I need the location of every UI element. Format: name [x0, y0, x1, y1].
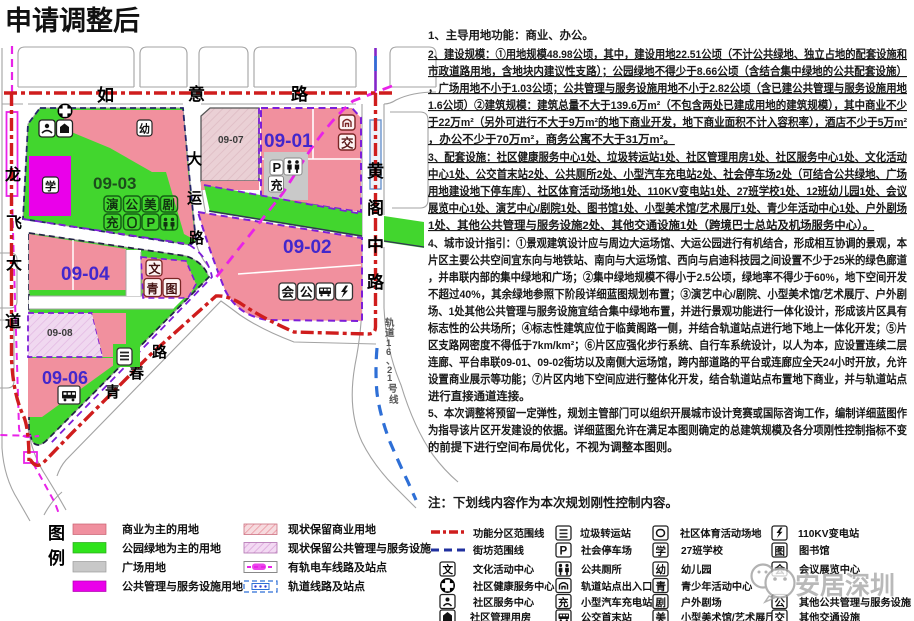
svg-text:展览中心1处、演艺中心/剧院1处、图书馆1处、小型美术馆/艺: 展览中心1处、演艺中心/剧院1处、图书馆1处、小型美术馆/艺术展厅1处、青少年活… — [427, 201, 907, 215]
svg-text:27班学校: 27班学校 — [681, 544, 724, 557]
svg-text:交: 交 — [775, 611, 786, 621]
svg-text:轨道站点出入口: 轨道站点出入口 — [581, 580, 652, 593]
svg-text:社区体育活动场地: 社区体育活动场地 — [679, 527, 762, 540]
svg-text:社会停车场: 社会停车场 — [580, 544, 632, 557]
svg-text:例: 例 — [48, 548, 65, 568]
svg-text:的前提下进行空间布局优化，不视为调整本图则。: 的前提下进行空间布局优化，不视为调整本图则。 — [428, 440, 679, 454]
svg-text:1处、其他公共管理与服务设施2处、其他交通设施1处（跨境巴士: 1处、其他公共管理与服务设施2处、其他交通设施1处（跨境巴士总站及机场服务中心）… — [428, 218, 874, 232]
svg-text:青: 青 — [147, 281, 159, 296]
svg-text:公园绿地为主的用地: 公园绿地为主的用地 — [122, 541, 221, 555]
svg-text:09-01: 09-01 — [264, 131, 313, 152]
svg-text:大: 大 — [6, 254, 22, 273]
svg-text:路: 路 — [152, 343, 168, 361]
svg-text:1: 1 — [387, 373, 393, 384]
svg-text:学: 学 — [656, 545, 667, 558]
svg-text:剧: 剧 — [163, 197, 176, 212]
svg-text:充: 充 — [271, 178, 283, 193]
svg-text:阁: 阁 — [367, 198, 384, 218]
svg-text:意: 意 — [188, 84, 205, 104]
svg-text:110KV变电站: 110KV变电站 — [798, 527, 859, 540]
svg-text:美: 美 — [656, 611, 667, 621]
svg-text:3、配套设施：社区健康服务中心1处、垃圾转运站1处、社区管理: 3、配套设施：社区健康服务中心1处、垃圾转运站1处、社区管理用房1处、社区服务中… — [428, 150, 907, 164]
svg-text:区支路网密度不得低于7km/km²；⑥片区应强化步行系统、自: 区支路网密度不得低于7km/km²；⑥片区应强化步行系统、自行车系统设计，以人为… — [428, 338, 907, 352]
svg-text:小型美术馆/艺术展厅: 小型美术馆/艺术展厅 — [680, 611, 776, 621]
svg-text:功能分区范围线: 功能分区范围线 — [473, 527, 545, 540]
svg-text:青少年活动中心: 青少年活动中心 — [681, 580, 753, 593]
svg-text:公共管理与服务设施用地: 公共管理与服务设施用地 — [122, 579, 243, 593]
svg-text:充: 充 — [558, 596, 569, 609]
svg-text:连廊、平台串联09-01、09-02街坊以及南侧大运场馆，跨: 连廊、平台串联09-01、09-02街坊以及南侧大运场馆，跨内部道路的平台或连廊… — [428, 355, 908, 369]
svg-text:黄: 黄 — [367, 161, 384, 181]
svg-text:09-06: 09-06 — [42, 368, 88, 388]
svg-text:市政道路用地，含地块内建议性支路）；公园绿地不得少于8.66: 市政道路用地，含地块内建议性支路）；公园绿地不得少于8.66公顷（含结合集中绿地… — [428, 64, 907, 78]
svg-text:中: 中 — [367, 235, 384, 255]
svg-text:公交首末站: 公交首末站 — [581, 611, 632, 621]
svg-text:P: P — [273, 160, 282, 175]
svg-text:现状保留商业用地: 现状保留商业用地 — [288, 522, 376, 536]
svg-text:路: 路 — [189, 229, 205, 247]
svg-text:现状保留公共管理与服务设施: 现状保留公共管理与服务设施 — [288, 541, 431, 555]
svg-text:垃圾转运站: 垃圾转运站 — [580, 527, 631, 540]
svg-text:线: 线 — [389, 394, 399, 406]
svg-text:广场用地: 广场用地 — [122, 560, 166, 574]
svg-text:户外剧场: 户外剧场 — [681, 596, 722, 609]
svg-text:不超过40%，其余绿地参照下阶段详细蓝图规划布置；③演艺中心: 不超过40%，其余绿地参照下阶段详细蓝图规划布置；③演艺中心/剧院、小型美术馆/… — [428, 287, 907, 301]
svg-text:运: 运 — [187, 190, 202, 207]
svg-text:安居深圳: 安居深圳 — [795, 571, 895, 600]
svg-text:商业为主的用地: 商业为主的用地 — [122, 522, 199, 536]
svg-text:公: 公 — [126, 198, 139, 212]
svg-text:社区服务中心: 社区服务中心 — [472, 596, 535, 609]
svg-text:申请调整后: 申请调整后 — [5, 6, 140, 36]
svg-text:飞: 飞 — [6, 214, 22, 232]
svg-text:设置商业展示等功能；⑦片区内地下空间应进行整体化开发，结合轨: 设置商业展示等功能；⑦片区内地下空间应进行整体化开发，结合轨道站点布置地下商业，… — [428, 372, 908, 386]
svg-text:有轨电车线路及站点: 有轨电车线路及站点 — [288, 560, 387, 574]
svg-text:路: 路 — [367, 272, 385, 292]
svg-text:轨道线路及站点: 轨道线路及站点 — [288, 579, 365, 593]
svg-text:号: 号 — [388, 384, 398, 395]
svg-text:街坊范围线: 街坊范围线 — [472, 544, 525, 557]
svg-text:公: 公 — [300, 286, 313, 300]
svg-text:社区健康服务中心: 社区健康服务中心 — [472, 580, 555, 593]
svg-text:1、主导用地功能：商业、办公。: 1、主导用地功能：商业、办公。 — [428, 28, 594, 42]
svg-text:图书馆: 图书馆 — [799, 544, 830, 557]
svg-text:为指导该片区开发建设的依据。详细蓝图允许在满足本图则确定的总: 为指导该片区开发建设的依据。详细蓝图允许在满足本图则确定的总建筑规模及各分项刚性… — [428, 423, 908, 437]
svg-text:幼: 幼 — [139, 122, 150, 136]
svg-text:文: 文 — [442, 563, 454, 576]
svg-text:P: P — [560, 546, 568, 558]
svg-text:交: 交 — [341, 136, 354, 151]
svg-text:剧: 剧 — [656, 596, 667, 609]
svg-text:文化活动中心: 文化活动中心 — [472, 563, 535, 576]
svg-text:美: 美 — [144, 197, 157, 212]
svg-text:青: 青 — [656, 580, 667, 593]
svg-text:公共厕所: 公共厕所 — [581, 563, 622, 576]
svg-text:其他交通设施: 其他交通设施 — [799, 611, 861, 621]
svg-text:社区管理用房: 社区管理用房 — [469, 611, 531, 621]
svg-text:于22万m²（另外可进行不大于9万m²的地下商业开发，地下商: 于22万m²（另外可进行不大于9万m²的地下商业开发，地下商业面积不计入容积率）… — [428, 115, 907, 129]
svg-text:图: 图 — [48, 524, 65, 543]
svg-text:2、建设规模：①用地规模48.98公顷，其中，建设用地22.: 2、建设规模：①用地规模48.98公顷，其中，建设用地22.51公顷（不计公共绿… — [428, 47, 907, 61]
svg-text:道: 道 — [5, 312, 21, 331]
svg-text:青: 青 — [105, 383, 120, 401]
svg-text:图: 图 — [775, 546, 786, 558]
svg-text:4、城市设计指引：①景观建筑设计应与周边大运场馆、大运公园进: 4、城市设计指引：①景观建筑设计应与周边大运场馆、大运公园进行有机结合，形成相互… — [428, 236, 908, 250]
svg-text:文: 文 — [149, 261, 162, 276]
svg-text:幼儿园: 幼儿园 — [681, 563, 712, 576]
svg-text:场、1处其他公共管理与服务设施宜结合集中绿地布置，并进行景观: 场、1处其他公共管理与服务设施宜结合集中绿地布置，并进行景观功能进行一体化设计，… — [428, 304, 907, 318]
svg-text:小型汽车充电站: 小型汽车充电站 — [580, 596, 652, 609]
svg-text:，办公不少于70万m²，商务公寓不大于31万m²。: ，办公不少于70万m²，商务公寓不大于31万m²。 — [428, 132, 675, 146]
svg-text:如: 如 — [97, 85, 114, 105]
svg-text:大: 大 — [187, 150, 202, 168]
svg-text:龙: 龙 — [4, 165, 21, 184]
svg-text:路: 路 — [291, 84, 309, 104]
svg-text:会: 会 — [282, 285, 295, 300]
svg-text:，广场用地不小于1.03公顷；公共管理与服务设施用地不小于2: ，广场用地不小于1.03公顷；公共管理与服务设施用地不小于2.82公顷（含已建公… — [428, 81, 908, 95]
svg-text:用地建设地下停车库）、社区体育活动场地1处、110KV变电站: 用地建设地下停车库）、社区体育活动场地1处、110KV变电站1处、27班学校1处… — [428, 184, 908, 198]
svg-text:09-03: 09-03 — [93, 174, 136, 193]
svg-text:图: 图 — [166, 282, 178, 296]
svg-text:标志性的公共场所；④标志性建筑应位于临黄阁路一侧，并结合轨道: 标志性的公共场所；④标志性建筑应位于临黄阁路一侧，并结合轨道站点进行地下地上一体… — [427, 321, 907, 335]
svg-text:演: 演 — [106, 197, 119, 212]
svg-text:中心1处、公交首末站2处、公共厕所2处、小型汽车充电站2处、: 中心1处、公交首末站2处、公共厕所2处、小型汽车充电站2处、社会停车场2处（可结… — [428, 167, 907, 181]
svg-text:P: P — [147, 215, 156, 230]
svg-text:09-02: 09-02 — [283, 237, 332, 258]
svg-text:注：下划线内容作为本次规划刚性控制内容。: 注：下划线内容作为本次规划刚性控制内容。 — [428, 495, 678, 510]
svg-text:09-08: 09-08 — [47, 328, 73, 339]
svg-text:幼: 幼 — [656, 563, 667, 576]
svg-text:，并串联内部的集中绿地和广场；②集中绿地规模不得小于2.5公: ，并串联内部的集中绿地和广场；②集中绿地规模不得小于2.5公顷，绿地率不得少于6… — [428, 270, 908, 284]
svg-text:进行直接通道连接。: 进行直接通道连接。 — [428, 389, 531, 403]
svg-text:09-04: 09-04 — [61, 264, 110, 285]
svg-text:5、本次调整将预留一定弹性，规划主管部门可以组织开展城市设计: 5、本次调整将预留一定弹性，规划主管部门可以组织开展城市设计竞赛或国际咨询工作，… — [428, 406, 908, 420]
svg-text:1.6公顷）②建筑规模：建筑总量不大于139.6万m²（不包: 1.6公顷）②建筑规模：建筑总量不大于139.6万m²（不包含两处已建成用地的建… — [428, 98, 908, 112]
svg-text:学: 学 — [45, 179, 56, 193]
svg-text:片区主要公共空间宜东向与地铁站、南向与大运场馆、西向与启迪科: 片区主要公共空间宜东向与地铁站、南向与大运场馆、西向与启迪科技园之间设置不少于2… — [428, 253, 908, 267]
svg-text:充: 充 — [106, 215, 119, 230]
svg-text:公: 公 — [775, 597, 786, 609]
svg-text:09-07: 09-07 — [218, 135, 244, 146]
